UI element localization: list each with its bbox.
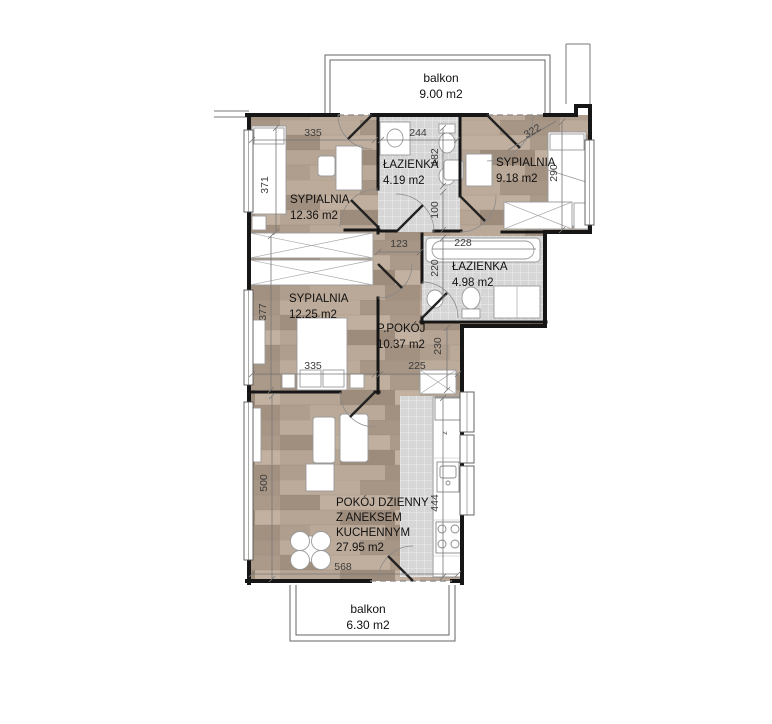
room-area-sypialnia-3: 12.25 m2: [289, 309, 337, 321]
toilet-symbol: [439, 124, 455, 153]
dim-label: 244: [409, 127, 427, 139]
dim-label: 230: [432, 337, 444, 355]
kitchen-sink-symbol: [437, 462, 459, 492]
room-area-lazienka-1: 4.19 m2: [383, 175, 425, 187]
dim-label: 220: [429, 259, 441, 277]
kitchen-counter-symbol: [433, 397, 461, 577]
room-name-sypialnia-1: SYPIALNIA: [290, 194, 350, 206]
balcony-top-area: 9.00 m2: [419, 87, 463, 101]
dim-label: 371: [259, 176, 271, 194]
window-symbol: [244, 402, 253, 560]
dim-label: 377: [257, 303, 269, 321]
kitchen-floor: [400, 396, 435, 577]
room-name-lazienka-2: ŁAZIENKA: [452, 261, 508, 273]
room-name-living-1: POKÓJ DZIENNY: [336, 496, 429, 509]
wardrobe-symbol: [250, 233, 373, 258]
bed-symbol: [252, 126, 286, 214]
room-name-sypialnia-3: SYPIALNIA: [289, 293, 349, 305]
dim-label: 335: [304, 360, 322, 372]
dim-label: 500: [258, 474, 270, 492]
toilet-symbol: [462, 287, 480, 318]
dim-label: 123: [390, 238, 408, 250]
radiator-symbol: [252, 320, 265, 364]
dim-label: 444: [429, 494, 441, 512]
window-symbol: [585, 140, 594, 225]
basin-symbol: [387, 129, 403, 147]
room-area-sypialnia-1: 12.36 m2: [290, 210, 338, 222]
floorplan-page: 335 244 322 371 182 290 100 123 228 220 …: [0, 0, 772, 724]
dim-label: 225: [408, 360, 426, 372]
bed-symbol: [297, 318, 347, 390]
dim-label: 335: [304, 127, 322, 139]
nightstand-symbol: [252, 216, 266, 230]
sofa-symbol: [340, 414, 368, 462]
nightstand-symbol: [282, 374, 295, 388]
window-symbol: [460, 392, 474, 432]
dim-label: 568: [334, 561, 352, 573]
armchair-symbol: [313, 417, 335, 463]
window-symbol: [460, 435, 474, 463]
room-area-sypialnia-2: 9.18 m2: [496, 173, 538, 185]
cabinet-symbol: [494, 286, 540, 318]
dim-label: 228: [454, 237, 472, 249]
dim-label: 100: [429, 201, 441, 219]
room-name-living-3: KUCHENNYM: [336, 527, 410, 539]
balcony-bottom-name: balkon: [350, 602, 385, 616]
room-name-living-2: Z ANEKSEM: [336, 512, 402, 524]
window-symbol: [460, 466, 474, 515]
window-symbol: [244, 290, 253, 385]
wardrobe-symbol: [250, 260, 373, 285]
desk-symbol: [466, 154, 492, 186]
desk-symbol: [336, 146, 362, 190]
chair-symbol: [318, 156, 335, 176]
kitchen-marker-label: z: [440, 431, 449, 435]
balcony-top: [325, 55, 550, 115]
window-symbol: [244, 130, 253, 212]
balcony-top-name: balkon: [423, 71, 458, 85]
room-area-living: 27.95 m2: [336, 542, 384, 554]
room-name-lazienka-1: ŁAZIENKA: [383, 159, 439, 171]
room-name-ppokoj: P.POKÓJ: [377, 322, 425, 335]
balcony-bottom-area: 6.30 m2: [346, 618, 390, 632]
room-area-ppokoj: 10.37 m2: [377, 339, 425, 351]
coffee-table-symbol: [306, 464, 334, 491]
nightstand-symbol: [350, 374, 364, 388]
floorplan-svg: 335 244 322 371 182 290 100 123 228 220 …: [0, 0, 772, 724]
room-area-lazienka-2: 4.98 m2: [452, 277, 494, 289]
room-name-sypialnia-2: SYPIALNIA: [496, 157, 556, 169]
